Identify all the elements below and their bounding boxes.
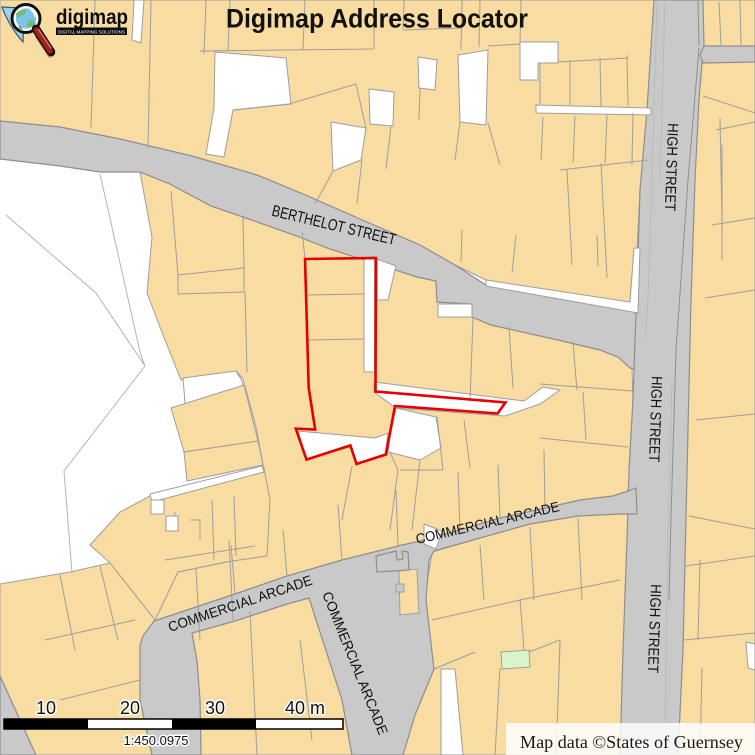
svg-text:20: 20 <box>120 698 140 718</box>
svg-text:digimap: digimap <box>56 6 128 29</box>
svg-text:40 m: 40 m <box>285 698 325 718</box>
svg-text:DIGITAL MAPPING SOLUTIONS: DIGITAL MAPPING SOLUTIONS <box>58 30 125 35</box>
svg-text:1:450.0975: 1:450.0975 <box>123 733 188 748</box>
svg-text:30: 30 <box>205 698 225 718</box>
svg-text:Map data ©States of Guernsey: Map data ©States of Guernsey <box>520 732 743 752</box>
svg-text:Digimap Address Locator: Digimap Address Locator <box>226 4 528 34</box>
svg-text:HIGH STREET: HIGH STREET <box>644 584 664 674</box>
svg-text:HIGH STREET: HIGH STREET <box>661 123 681 212</box>
svg-text:10: 10 <box>36 698 56 718</box>
svg-text:HIGH STREET: HIGH STREET <box>645 376 665 463</box>
